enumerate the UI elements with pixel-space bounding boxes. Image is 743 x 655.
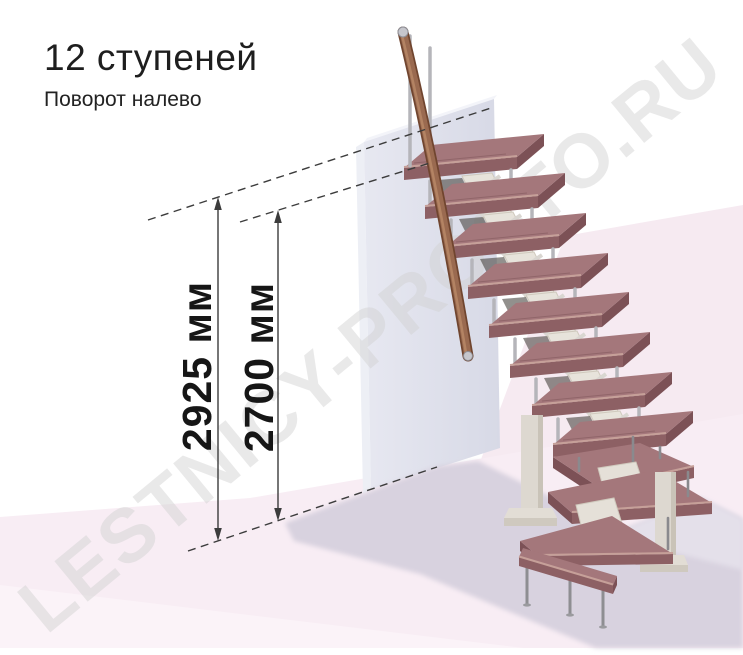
title-block: 12 ступеней Поворот налево	[44, 38, 258, 112]
dim-label-flight-height: 2700 мм	[236, 282, 282, 452]
dim-label-total-height: 2925 мм	[174, 281, 220, 451]
page-subtitle: Поворот налево	[44, 88, 258, 112]
handrail-end-cap-top	[398, 27, 408, 37]
diagram-canvas: LESTNICY-PROSTO.RU	[0, 0, 743, 655]
page-title: 12 ступеней	[44, 38, 258, 79]
handrail-end-cap-bottom	[464, 352, 473, 361]
